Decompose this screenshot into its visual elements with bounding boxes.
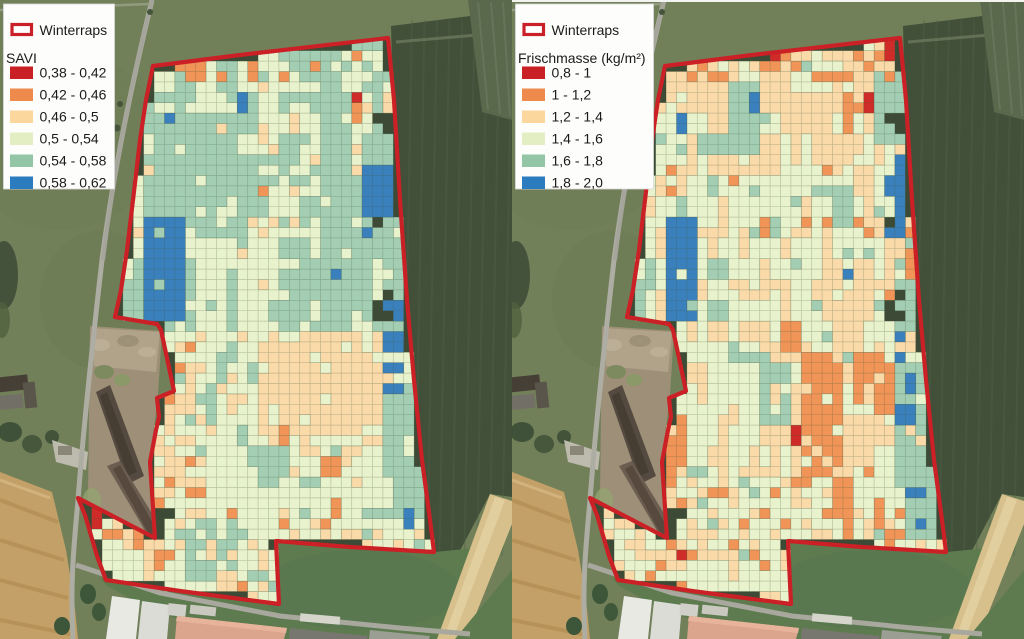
svg-text:0,5 - 0,54: 0,5 - 0,54 [40,131,99,147]
svg-text:0,8 - 1: 0,8 - 1 [552,65,592,81]
svg-text:Winterraps: Winterraps [40,22,108,38]
svg-text:0,58 - 0,62: 0,58 - 0,62 [40,175,107,191]
svg-text:0,38 - 0,42: 0,38 - 0,42 [40,65,107,81]
svg-text:1,4 - 1,6: 1,4 - 1,6 [552,131,604,147]
svg-text:0,46 - 0,5: 0,46 - 0,5 [40,109,99,125]
svg-text:0,42 - 0,46: 0,42 - 0,46 [40,87,107,103]
svg-text:1,2 - 1,4: 1,2 - 1,4 [552,109,604,125]
svg-text:SAVI: SAVI [6,50,37,66]
svg-text:1,8 - 2,0: 1,8 - 2,0 [552,175,604,191]
svg-text:Winterraps: Winterraps [552,22,620,38]
svg-text:0,54 - 0,58: 0,54 - 0,58 [40,153,107,169]
svg-text:1 - 1,2: 1 - 1,2 [552,87,592,103]
svg-text:1,6 - 1,8: 1,6 - 1,8 [552,153,604,169]
